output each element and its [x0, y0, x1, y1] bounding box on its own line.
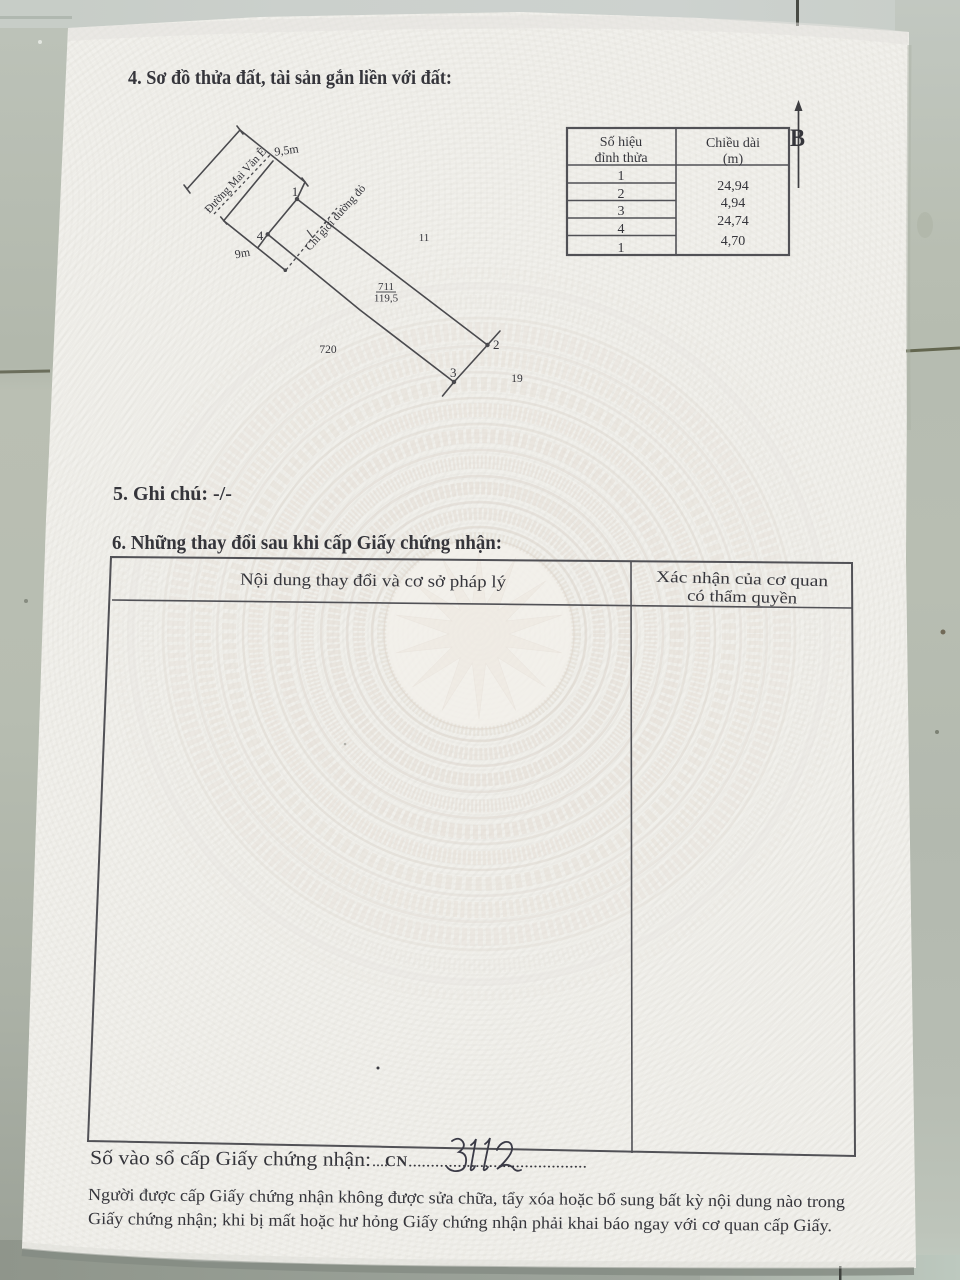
- svg-text:24,94: 24,94: [717, 179, 749, 194]
- svg-text:4: 4: [618, 222, 625, 237]
- svg-text:9m: 9m: [234, 245, 252, 262]
- svg-text:3: 3: [618, 204, 625, 219]
- svg-text:Xác nhận của cơ quan: Xác nhận của cơ quan: [656, 569, 828, 590]
- svg-text:Người được cấp Giấy chứng nhận: Người được cấp Giấy chứng nhận không đượ…: [88, 1185, 846, 1211]
- svg-text:4. Sơ đồ thửa đất, tài sản gắn: 4. Sơ đồ thửa đất, tài sản gắn liền với …: [128, 67, 452, 89]
- svg-text:B: B: [790, 125, 805, 152]
- svg-text:Giấy chứng nhận; khi bị mất ho: Giấy chứng nhận; khi bị mất hoặc hư hỏng…: [88, 1209, 832, 1235]
- svg-text:1: 1: [292, 184, 299, 199]
- svg-text:CN: CN: [385, 1154, 408, 1170]
- svg-text:24,74: 24,74: [717, 214, 749, 229]
- svg-text:Chỉ giới đường đỏ: Chỉ giới đường đỏ: [303, 183, 368, 254]
- svg-text:720: 720: [319, 344, 337, 356]
- svg-text:1: 1: [618, 241, 625, 256]
- svg-text:11: 11: [419, 232, 430, 244]
- svg-text:Đường Mai Văn Ê: Đường Mai Văn Ê: [201, 145, 269, 216]
- svg-text:5. Ghi chú: -/-: 5. Ghi chú: -/-: [113, 483, 232, 505]
- svg-text:19: 19: [511, 373, 523, 385]
- svg-text:2: 2: [493, 337, 500, 352]
- svg-text:2: 2: [618, 187, 625, 202]
- svg-text:đỉnh thửa: đỉnh thửa: [594, 151, 648, 166]
- svg-text:711: 711: [378, 281, 394, 293]
- svg-text:1: 1: [618, 169, 625, 184]
- svg-text:Số hiệu: Số hiệu: [600, 135, 642, 150]
- svg-text:6. Những thay đổi sau khi cấp: 6. Những thay đổi sau khi cấp Giấy chứng…: [112, 532, 502, 554]
- svg-text:Số vào sổ cấp Giấy chứng nhận:: Số vào sổ cấp Giấy chứng nhận:: [90, 1147, 371, 1171]
- svg-text:119,5: 119,5: [374, 293, 399, 305]
- svg-text:(m): (m): [723, 152, 744, 167]
- svg-text:3: 3: [450, 365, 457, 380]
- svg-text:có thẩm quyền: có thẩm quyền: [687, 588, 797, 608]
- svg-text:9,5m: 9,5m: [273, 141, 300, 158]
- svg-text:Nội dung thay đổi và cơ sở phá: Nội dung thay đổi và cơ sở pháp lý: [240, 570, 507, 592]
- svg-text:4,94: 4,94: [721, 196, 746, 211]
- svg-text:4,70: 4,70: [721, 234, 746, 249]
- svg-text:4: 4: [257, 228, 264, 243]
- svg-text:Chiều dài: Chiều dài: [706, 136, 760, 151]
